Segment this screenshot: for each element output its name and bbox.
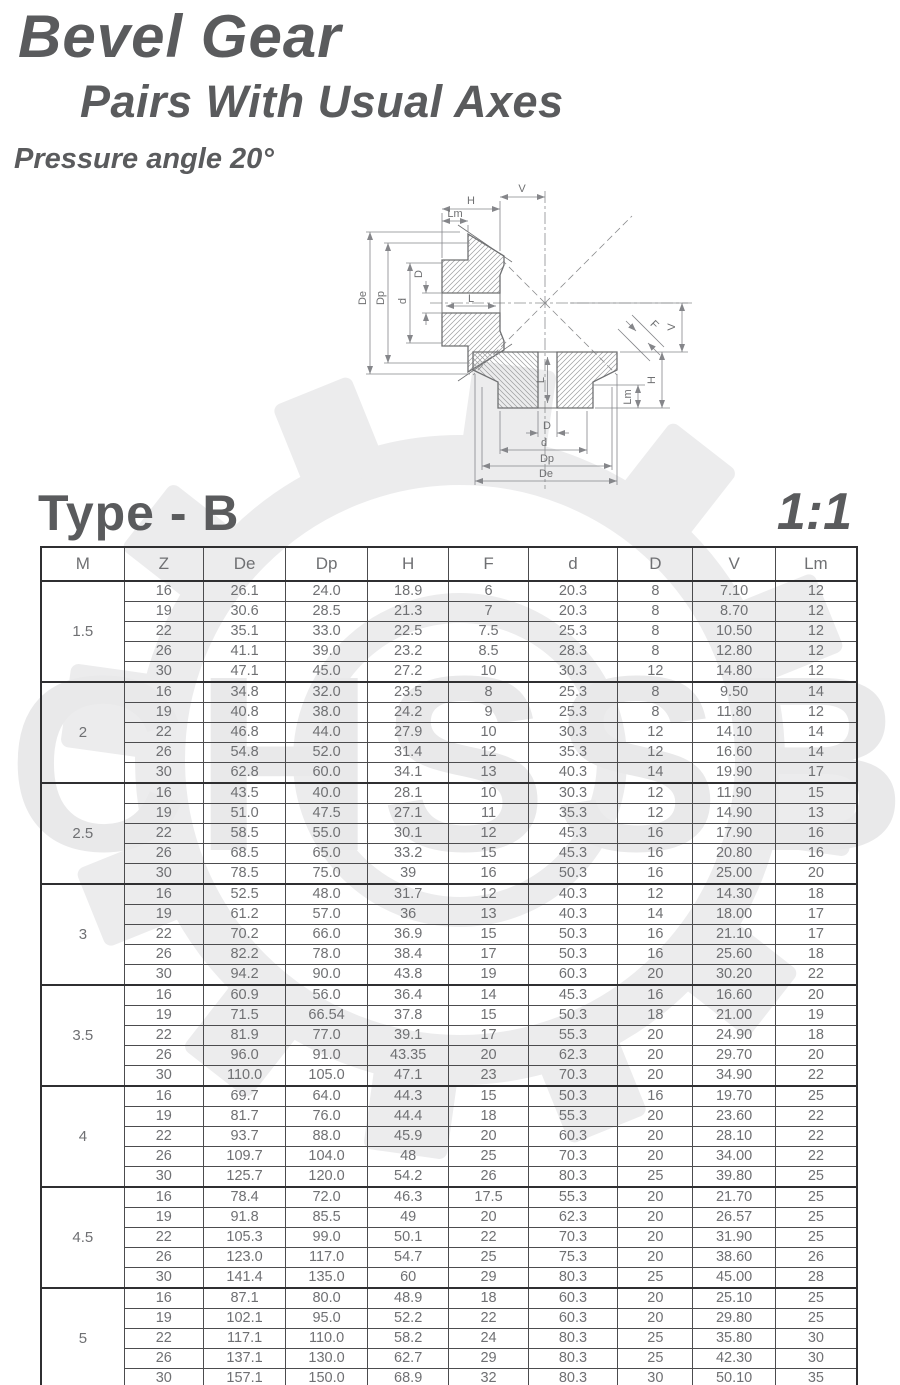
- table-cell: 30.3: [528, 662, 618, 683]
- table-cell: 11: [449, 804, 528, 824]
- table-cell: 8.5: [449, 642, 528, 662]
- table-row: 2641.139.023.28.528.3812.8012: [41, 642, 857, 662]
- table-cell: 50.1: [367, 1228, 449, 1248]
- table-cell: 35: [775, 1369, 857, 1385]
- table-cell: 25.10: [693, 1288, 775, 1309]
- table-cell: 30: [124, 662, 203, 683]
- dim-d-bottom: d: [541, 437, 547, 449]
- table-cell: 22: [124, 925, 203, 945]
- table-cell: 25: [775, 1187, 857, 1208]
- table-cell: 26: [124, 1349, 203, 1369]
- table-cell: 60.3: [528, 1288, 618, 1309]
- table-cell: 135.0: [286, 1268, 368, 1289]
- table-cell: 30.3: [528, 723, 618, 743]
- table-cell: 104.0: [286, 1147, 368, 1167]
- table-row: 51687.180.048.91860.32025.1025: [41, 1288, 857, 1309]
- table-cell: 33.0: [286, 622, 368, 642]
- table-row: 1961.257.0361340.31418.0017: [41, 905, 857, 925]
- column-header: V: [693, 547, 775, 581]
- table-cell: 40.8: [203, 703, 285, 723]
- table-cell: 14: [775, 743, 857, 763]
- table-cell: 20: [618, 1046, 693, 1066]
- table-cell: 30: [124, 965, 203, 986]
- m-group-cell: 5: [41, 1288, 124, 1385]
- table-row: 2258.555.030.11245.31617.9016: [41, 824, 857, 844]
- table-cell: 25: [618, 1329, 693, 1349]
- table-cell: 34.1: [367, 763, 449, 784]
- table-cell: 76.0: [286, 1107, 368, 1127]
- table-row: 31652.548.031.71240.31214.3018: [41, 884, 857, 905]
- table-cell: 19: [124, 1309, 203, 1329]
- table-cell: 7: [449, 602, 528, 622]
- spec-table: MZDeDpHFdDVLm1.51626.124.018.9620.387.10…: [40, 546, 858, 1385]
- table-cell: 14.10: [693, 723, 775, 743]
- table-cell: 41.1: [203, 642, 285, 662]
- table-cell: 12: [618, 743, 693, 763]
- table-cell: 16: [775, 824, 857, 844]
- table-cell: 60: [367, 1268, 449, 1289]
- table-cell: 20: [618, 1026, 693, 1046]
- table-cell: 35.1: [203, 622, 285, 642]
- table-cell: 46.3: [367, 1187, 449, 1208]
- column-header: De: [203, 547, 285, 581]
- table-cell: 16: [618, 985, 693, 1006]
- table-cell: 16: [618, 844, 693, 864]
- m-group-cell: 4: [41, 1086, 124, 1187]
- dim-V-top: V: [518, 183, 526, 195]
- table-cell: 52.0: [286, 743, 368, 763]
- column-header: F: [449, 547, 528, 581]
- table-row: 2293.788.045.92060.32028.1022: [41, 1127, 857, 1147]
- table-cell: 48.9: [367, 1288, 449, 1309]
- table-cell: 25: [618, 1268, 693, 1289]
- table-cell: 22: [449, 1309, 528, 1329]
- table-cell: 19: [124, 804, 203, 824]
- table-cell: 44.3: [367, 1086, 449, 1107]
- table-cell: 30: [618, 1369, 693, 1385]
- table-cell: 14: [618, 763, 693, 784]
- column-header: D: [618, 547, 693, 581]
- table-cell: 16: [124, 783, 203, 804]
- table-cell: 12: [775, 581, 857, 602]
- table-cell: 8: [618, 642, 693, 662]
- table-cell: 39.0: [286, 642, 368, 662]
- table-cell: 21.10: [693, 925, 775, 945]
- table-row: 19102.195.052.22260.32029.8025: [41, 1309, 857, 1329]
- table-cell: 69.7: [203, 1086, 285, 1107]
- table-cell: 12: [775, 622, 857, 642]
- table-cell: 35.80: [693, 1329, 775, 1349]
- table-cell: 20: [618, 1066, 693, 1087]
- table-cell: 54.8: [203, 743, 285, 763]
- table-row: 30141.4135.0602980.32545.0028: [41, 1268, 857, 1289]
- table-cell: 10: [449, 662, 528, 683]
- table-cell: 32.0: [286, 682, 368, 703]
- table-cell: 20: [449, 1127, 528, 1147]
- table-cell: 35.3: [528, 743, 618, 763]
- table-cell: 130.0: [286, 1349, 368, 1369]
- table-cell: 12: [618, 723, 693, 743]
- table-cell: 18: [449, 1107, 528, 1127]
- table-cell: 18: [775, 1026, 857, 1046]
- table-cell: 16: [775, 844, 857, 864]
- table-cell: 45.0: [286, 662, 368, 683]
- table-cell: 16: [618, 824, 693, 844]
- table-cell: 14.80: [693, 662, 775, 683]
- table-row: 2270.266.036.91550.31621.1017: [41, 925, 857, 945]
- header-row: MZDeDpHFdDVLm: [41, 547, 857, 581]
- dim-D-bottom: D: [543, 420, 551, 432]
- table-cell: 80.0: [286, 1288, 368, 1309]
- table-cell: 19: [124, 1107, 203, 1127]
- table-row: 2235.133.022.57.525.3810.5012: [41, 622, 857, 642]
- table-cell: 12: [449, 884, 528, 905]
- table-cell: 28.10: [693, 1127, 775, 1147]
- table-cell: 8: [618, 703, 693, 723]
- table-cell: 80.3: [528, 1369, 618, 1385]
- table-cell: 14: [775, 682, 857, 703]
- table-cell: 12.80: [693, 642, 775, 662]
- table-cell: 60.0: [286, 763, 368, 784]
- table-cell: 36: [367, 905, 449, 925]
- dim-V-right: V: [666, 323, 678, 331]
- table-cell: 29: [449, 1268, 528, 1289]
- table-cell: 26: [124, 1248, 203, 1268]
- table-cell: 95.0: [286, 1309, 368, 1329]
- table-cell: 141.4: [203, 1268, 285, 1289]
- table-row: 30125.7120.054.22680.32539.8025: [41, 1167, 857, 1188]
- table-cell: 30: [775, 1329, 857, 1349]
- table-cell: 117.1: [203, 1329, 285, 1349]
- table-cell: 26: [775, 1248, 857, 1268]
- table-row: 1991.885.5492062.32026.5725: [41, 1208, 857, 1228]
- table-cell: 22: [124, 1329, 203, 1349]
- table-cell: 17: [775, 925, 857, 945]
- table-cell: 22: [775, 1147, 857, 1167]
- table-cell: 11.80: [693, 703, 775, 723]
- table-cell: 88.0: [286, 1127, 368, 1147]
- table-cell: 13: [775, 804, 857, 824]
- table-cell: 96.0: [203, 1046, 285, 1066]
- table-cell: 81.7: [203, 1107, 285, 1127]
- table-cell: 47.1: [367, 1066, 449, 1087]
- table-cell: 55.3: [528, 1187, 618, 1208]
- table-cell: 45.3: [528, 985, 618, 1006]
- table-cell: 16.60: [693, 743, 775, 763]
- table-cell: 30.20: [693, 965, 775, 986]
- table-cell: 70.3: [528, 1147, 618, 1167]
- table-cell: 19: [124, 905, 203, 925]
- table-cell: 109.7: [203, 1147, 285, 1167]
- table-cell: 13: [449, 763, 528, 784]
- table-row: 41669.764.044.31550.31619.7025: [41, 1086, 857, 1107]
- m-group-cell: 4.5: [41, 1187, 124, 1288]
- table-cell: 78.5: [203, 864, 285, 885]
- table-cell: 68.5: [203, 844, 285, 864]
- table-cell: 19: [124, 1006, 203, 1026]
- table-cell: 22: [449, 1228, 528, 1248]
- table-cell: 20: [618, 1309, 693, 1329]
- table-cell: 16: [124, 1288, 203, 1309]
- table-cell: 25: [449, 1248, 528, 1268]
- table-cell: 45.00: [693, 1268, 775, 1289]
- table-cell: 68.9: [367, 1369, 449, 1385]
- dim-H-right: H: [646, 376, 658, 384]
- table-cell: 34.8: [203, 682, 285, 703]
- table-cell: 18: [618, 1006, 693, 1026]
- table-cell: 36.4: [367, 985, 449, 1006]
- table-cell: 40.0: [286, 783, 368, 804]
- table-row: 22105.399.050.12270.32031.9025: [41, 1228, 857, 1248]
- table-cell: 55.0: [286, 824, 368, 844]
- table-cell: 17.5: [449, 1187, 528, 1208]
- table-cell: 14.90: [693, 804, 775, 824]
- table-cell: 22: [775, 1107, 857, 1127]
- table-cell: 93.7: [203, 1127, 285, 1147]
- table-cell: 20: [618, 1147, 693, 1167]
- table-row: 1971.566.5437.81550.31821.0019: [41, 1006, 857, 1026]
- table-cell: 48: [367, 1147, 449, 1167]
- table-cell: 26.1: [203, 581, 285, 602]
- table-cell: 45.3: [528, 844, 618, 864]
- table-cell: 51.0: [203, 804, 285, 824]
- table-cell: 80.3: [528, 1268, 618, 1289]
- table-cell: 32: [449, 1369, 528, 1385]
- dim-Lm-top: Lm: [447, 208, 462, 220]
- table-cell: 9.50: [693, 682, 775, 703]
- table-cell: 50.3: [528, 925, 618, 945]
- table-cell: 8: [618, 682, 693, 703]
- table-cell: 28.5: [286, 602, 368, 622]
- table-cell: 40.3: [528, 763, 618, 784]
- table-cell: 87.1: [203, 1288, 285, 1309]
- table-cell: 44.4: [367, 1107, 449, 1127]
- table-cell: 20.3: [528, 602, 618, 622]
- table-row: 21634.832.023.5825.389.5014: [41, 682, 857, 703]
- bevel-gear-diagram: V H Lm L De Dp d D F V H Lm L D d Dp De: [330, 175, 730, 505]
- table-cell: 6: [449, 581, 528, 602]
- table-row: 3078.575.0391650.31625.0020: [41, 864, 857, 885]
- table-cell: 58.2: [367, 1329, 449, 1349]
- table-cell: 43.5: [203, 783, 285, 804]
- table-cell: 81.9: [203, 1026, 285, 1046]
- m-group-cell: 3: [41, 884, 124, 985]
- table-cell: 22: [124, 723, 203, 743]
- table-cell: 25.00: [693, 864, 775, 885]
- table-cell: 25: [775, 1228, 857, 1248]
- table-cell: 20: [775, 864, 857, 885]
- table-cell: 78.4: [203, 1187, 285, 1208]
- pressure-angle-label: Pressure angle 20°: [14, 143, 274, 176]
- dim-H-top: H: [467, 195, 475, 207]
- table-cell: 22: [775, 965, 857, 986]
- table-cell: 110.0: [286, 1329, 368, 1349]
- table-cell: 24.0: [286, 581, 368, 602]
- column-header: d: [528, 547, 618, 581]
- table-cell: 17: [449, 1026, 528, 1046]
- table-cell: 20: [618, 1127, 693, 1147]
- table-cell: 17: [449, 945, 528, 965]
- dim-L-top: L: [468, 293, 474, 305]
- table-cell: 62.3: [528, 1208, 618, 1228]
- table-cell: 22: [124, 1228, 203, 1248]
- table-cell: 27.1: [367, 804, 449, 824]
- table-cell: 20: [618, 1288, 693, 1309]
- table-cell: 20: [618, 1107, 693, 1127]
- table-cell: 15: [449, 925, 528, 945]
- table-cell: 22: [775, 1127, 857, 1147]
- table-cell: 26.57: [693, 1208, 775, 1228]
- table-cell: 25.3: [528, 703, 618, 723]
- table-cell: 20: [775, 985, 857, 1006]
- table-cell: 23.5: [367, 682, 449, 703]
- table-cell: 39.80: [693, 1167, 775, 1188]
- table-row: 2696.091.043.352062.32029.7020: [41, 1046, 857, 1066]
- dim-Dp-left: Dp: [375, 291, 387, 305]
- table-cell: 60.3: [528, 1309, 618, 1329]
- table-cell: 31.7: [367, 884, 449, 905]
- table-cell: 12: [618, 783, 693, 804]
- table-cell: 75.0: [286, 864, 368, 885]
- table-cell: 8: [618, 581, 693, 602]
- table-cell: 30: [124, 1167, 203, 1188]
- table-cell: 16.60: [693, 985, 775, 1006]
- table-cell: 16: [124, 682, 203, 703]
- table-row: 2281.977.039.11755.32024.9018: [41, 1026, 857, 1046]
- table-cell: 66.54: [286, 1006, 368, 1026]
- table-row: 3047.145.027.21030.31214.8012: [41, 662, 857, 683]
- table-cell: 50.10: [693, 1369, 775, 1385]
- table-cell: 18: [775, 884, 857, 905]
- dim-Dp-bottom: Dp: [540, 453, 554, 465]
- table-row: 3.51660.956.036.41445.31616.6020: [41, 985, 857, 1006]
- table-cell: 10: [449, 723, 528, 743]
- table-cell: 21.70: [693, 1187, 775, 1208]
- table-cell: 38.60: [693, 1248, 775, 1268]
- table-cell: 7.10: [693, 581, 775, 602]
- table-row: 3062.860.034.11340.31419.9017: [41, 763, 857, 784]
- table-cell: 26: [449, 1167, 528, 1188]
- table-cell: 14: [775, 723, 857, 743]
- table-cell: 48.0: [286, 884, 368, 905]
- table-cell: 57.0: [286, 905, 368, 925]
- table-cell: 33.2: [367, 844, 449, 864]
- table-cell: 54.7: [367, 1248, 449, 1268]
- table-cell: 16: [124, 1187, 203, 1208]
- table-cell: 9: [449, 703, 528, 723]
- table-cell: 14: [449, 985, 528, 1006]
- table-cell: 125.7: [203, 1167, 285, 1188]
- table-cell: 12: [775, 642, 857, 662]
- table-cell: 16: [618, 864, 693, 885]
- table-cell: 58.5: [203, 824, 285, 844]
- table-cell: 26: [124, 743, 203, 763]
- table-cell: 36.9: [367, 925, 449, 945]
- table-cell: 61.2: [203, 905, 285, 925]
- table-cell: 10: [449, 783, 528, 804]
- table-cell: 27.9: [367, 723, 449, 743]
- table-cell: 62.3: [528, 1046, 618, 1066]
- table-cell: 55.3: [528, 1107, 618, 1127]
- table-cell: 25: [449, 1147, 528, 1167]
- table-cell: 10.50: [693, 622, 775, 642]
- table-cell: 16: [124, 985, 203, 1006]
- table-cell: 31.90: [693, 1228, 775, 1248]
- table-cell: 8: [618, 602, 693, 622]
- dim-L-bottom: L: [535, 377, 547, 383]
- table-row: 22117.1110.058.22480.32535.8030: [41, 1329, 857, 1349]
- column-header: Lm: [775, 547, 857, 581]
- table-cell: 25: [775, 1086, 857, 1107]
- table-cell: 123.0: [203, 1248, 285, 1268]
- table-cell: 105.3: [203, 1228, 285, 1248]
- page-subtitle: Pairs With Usual Axes: [80, 76, 564, 128]
- table-cell: 24.90: [693, 1026, 775, 1046]
- table-cell: 25.60: [693, 945, 775, 965]
- table-cell: 25.3: [528, 682, 618, 703]
- table-cell: 19: [124, 1208, 203, 1228]
- spec-table-wrap: MZDeDpHFdDVLm1.51626.124.018.9620.387.10…: [40, 546, 858, 1385]
- table-cell: 17: [775, 763, 857, 784]
- table-cell: 94.2: [203, 965, 285, 986]
- table-cell: 91.8: [203, 1208, 285, 1228]
- table-cell: 26: [124, 945, 203, 965]
- table-cell: 26: [124, 844, 203, 864]
- table-cell: 60.9: [203, 985, 285, 1006]
- table-cell: 85.5: [286, 1208, 368, 1228]
- table-row: 3094.290.043.81960.32030.2022: [41, 965, 857, 986]
- m-group-cell: 3.5: [41, 985, 124, 1086]
- table-cell: 77.0: [286, 1026, 368, 1046]
- table-cell: 17.90: [693, 824, 775, 844]
- table-row: 26123.0117.054.72575.32038.6026: [41, 1248, 857, 1268]
- table-row: 4.51678.472.046.317.555.32021.7025: [41, 1187, 857, 1208]
- table-cell: 17: [775, 905, 857, 925]
- table-cell: 78.0: [286, 945, 368, 965]
- table-cell: 14: [618, 905, 693, 925]
- table-cell: 15: [449, 1086, 528, 1107]
- table-cell: 38.0: [286, 703, 368, 723]
- table-cell: 64.0: [286, 1086, 368, 1107]
- table-cell: 23: [449, 1066, 528, 1087]
- table-row: 2.51643.540.028.11030.31211.9015: [41, 783, 857, 804]
- table-row: 26109.7104.0482570.32034.0022: [41, 1147, 857, 1167]
- column-header: H: [367, 547, 449, 581]
- table-cell: 13: [449, 905, 528, 925]
- table-cell: 30.3: [528, 783, 618, 804]
- table-cell: 30: [124, 1369, 203, 1385]
- table-cell: 20: [449, 1208, 528, 1228]
- table-cell: 137.1: [203, 1349, 285, 1369]
- table-cell: 34.00: [693, 1147, 775, 1167]
- table-cell: 16: [124, 1086, 203, 1107]
- table-cell: 27.2: [367, 662, 449, 683]
- dim-Lm-right: Lm: [622, 389, 634, 404]
- table-cell: 23.60: [693, 1107, 775, 1127]
- table-cell: 20: [618, 1208, 693, 1228]
- table-cell: 71.5: [203, 1006, 285, 1026]
- table-cell: 43.35: [367, 1046, 449, 1066]
- column-header: Dp: [286, 547, 368, 581]
- m-group-cell: 2: [41, 682, 124, 783]
- table-cell: 62.7: [367, 1349, 449, 1369]
- table-row: 1930.628.521.3720.388.7012: [41, 602, 857, 622]
- table-cell: 19.90: [693, 763, 775, 784]
- type-label: Type - B: [38, 484, 240, 542]
- table-cell: 52.2: [367, 1309, 449, 1329]
- table-row: 26137.1130.062.72980.32542.3030: [41, 1349, 857, 1369]
- table-cell: 21.00: [693, 1006, 775, 1026]
